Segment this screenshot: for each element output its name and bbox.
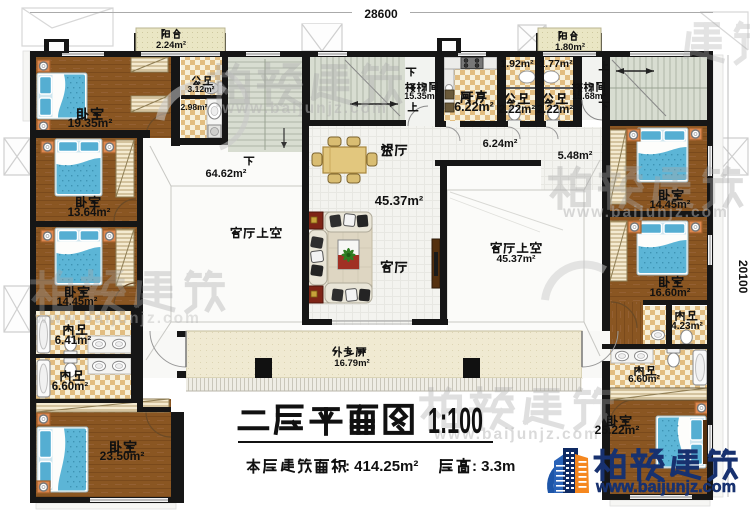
svg-text:25.22m²: 25.22m²	[595, 423, 640, 437]
svg-text:1.92m²: 1.92m²	[500, 58, 534, 70]
svg-text:15.35m²: 15.35m²	[404, 91, 438, 101]
svg-text:1.80m²: 1.80m²	[555, 42, 585, 53]
svg-text:13.64m²: 13.64m²	[68, 207, 111, 219]
svg-text:www.baijunjz.com: www.baijunjz.com	[562, 204, 729, 221]
svg-text:6.22m²: 6.22m²	[454, 100, 494, 114]
svg-text:45.37m²: 45.37m²	[496, 253, 536, 265]
svg-text:14.45m²: 14.45m²	[650, 199, 691, 211]
svg-text:www.baijunjz.com: www.baijunjz.com	[34, 310, 201, 327]
svg-text:2.24m²: 2.24m²	[156, 40, 186, 51]
svg-text:6.24m²: 6.24m²	[483, 138, 518, 150]
svg-text:: 414.25m²: : 414.25m²	[345, 458, 418, 475]
svg-text:2.98m²: 2.98m²	[181, 102, 208, 112]
svg-text:16.60m²: 16.60m²	[650, 287, 691, 299]
svg-text:14.45m²: 14.45m²	[57, 296, 98, 308]
svg-text:23.50m²: 23.50m²	[100, 449, 145, 463]
svg-text:4.23m²: 4.23m²	[671, 321, 703, 332]
svg-text:: 3.3m: : 3.3m	[472, 458, 515, 475]
svg-text:1.77m²: 1.77m²	[539, 58, 573, 70]
svg-text:15.68m²: 15.68m²	[572, 91, 606, 101]
svg-text:3.12m²: 3.12m²	[188, 84, 215, 94]
svg-text:2.22m²: 2.22m²	[537, 104, 574, 116]
svg-text:19.35m²: 19.35m²	[68, 116, 113, 130]
svg-text:20100: 20100	[736, 260, 750, 294]
svg-text:16.79m²: 16.79m²	[334, 358, 369, 369]
svg-text:www.baijunjz.com: www.baijunjz.com	[595, 477, 736, 496]
svg-text:6.60m²: 6.60m²	[628, 374, 660, 385]
svg-text:www.baijunjz.com: www.baijunjz.com	[221, 100, 388, 117]
svg-text:28600: 28600	[364, 7, 398, 21]
svg-text:5.48m²: 5.48m²	[558, 150, 593, 162]
svg-text:2.22m²: 2.22m²	[499, 104, 536, 116]
svg-text:45.37m²: 45.37m²	[375, 193, 424, 208]
svg-text:6.60m²: 6.60m²	[52, 381, 89, 393]
svg-text:1:100: 1:100	[428, 400, 483, 441]
svg-text:6.41m²: 6.41m²	[55, 335, 92, 347]
svg-text:64.62m²: 64.62m²	[206, 168, 247, 180]
